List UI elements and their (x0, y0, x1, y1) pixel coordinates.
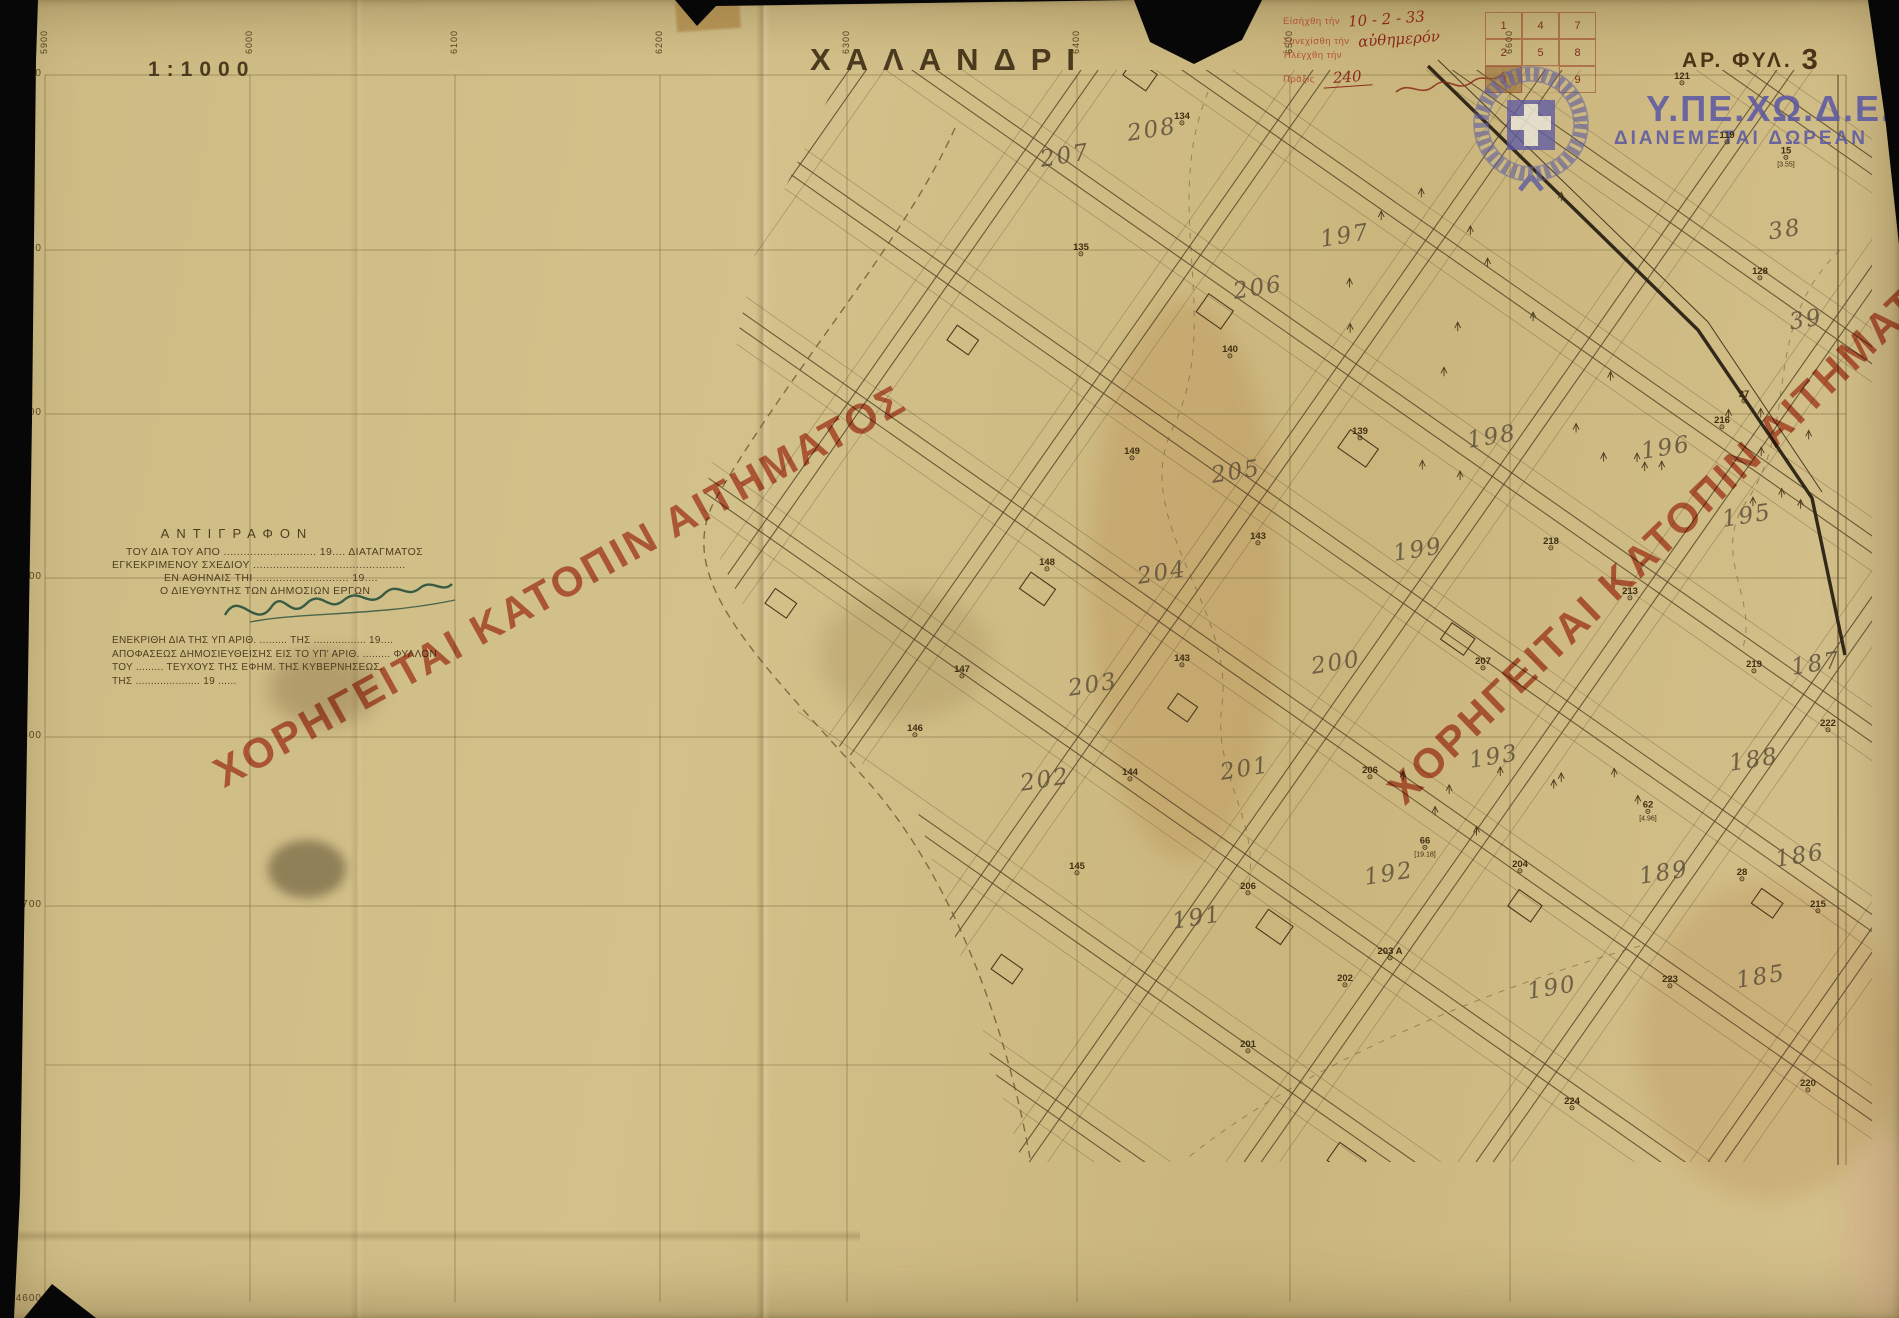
survey-point-label: 121⊙ (1674, 73, 1690, 87)
point-elevation: [3.55] (1777, 162, 1795, 169)
stamp-row: Συνεχίσθη τήναὐθημερόν (1283, 30, 1515, 48)
survey-point-label: 202⊙ (1337, 975, 1353, 989)
agency-distribution-note: ΔΙΑΝΕΜΕΤΑΙ ΔΩΡΕΑΝ (1614, 128, 1868, 150)
point-elevation: [19.18] (1414, 852, 1435, 859)
block-number-label: 39 (1788, 305, 1825, 336)
survey-point-label: 203 A⊙ (1378, 948, 1403, 962)
survey-point-label: 149⊙ (1124, 448, 1140, 462)
stamp-field-label: Πρᾶξις (1283, 74, 1315, 85)
survey-point-label: 62⊙[4.96] (1639, 802, 1657, 823)
survey-point-label: 135⊙ (1073, 244, 1089, 258)
certification-lines: ΤΟΥ ΔΙΑ ΤΟΥ ΑΠΟ ........................… (112, 546, 462, 598)
point-elevation: [4.96] (1639, 816, 1657, 823)
grid-x-label: 6000 (244, 30, 254, 54)
certification-line: ΕΓΚΕΚΡΙΜΕΝΟΥ ΣΧΕΔΙΟΥ ...................… (112, 559, 462, 572)
grid-x-label: 6400 (1071, 30, 1081, 54)
survey-point-label: 215⊙ (1810, 901, 1826, 915)
survey-point-label: 148⊙ (1039, 559, 1055, 573)
survey-point-label: 206⊙ (1240, 883, 1256, 897)
certification-line: Ο ΔΙΕΥΘΥΝΤΗΣ ΤΩΝ ΔΗΜΟΣΙΩΝ ΕΡΓΩΝ (112, 585, 462, 598)
grid-y-label: 4800 (4, 730, 42, 741)
survey-point-label: 15⊙[3.55] (1777, 148, 1795, 169)
survey-point-label: 219⊙ (1746, 661, 1762, 675)
decision-line: ΤΟΥ ......... ΤΕΥΧΟΥΣ ΤΗΣ ΕΦΗΜ. ΤΗΣ ΚΥΒΕ… (112, 661, 492, 675)
survey-point-label: 223⊙ (1662, 976, 1678, 990)
survey-point-label: 206⊙ (1362, 767, 1378, 781)
stamp-field-value: 240 (1322, 66, 1372, 88)
survey-point-label: 66⊙[19.18] (1414, 838, 1435, 859)
grid-x-label: 5900 (39, 30, 49, 54)
survey-point-label: 134⊙ (1174, 113, 1190, 127)
grid-x-label: 6500 (1284, 30, 1294, 54)
index-cell: 4 (1522, 12, 1559, 39)
survey-point-label: 119⊙ (1719, 132, 1734, 146)
grid-y-label: 5100 (4, 243, 42, 254)
survey-point-label: 143⊙ (1250, 533, 1266, 547)
grid-x-label: 6600 (1504, 30, 1514, 54)
survey-point-label: 128⊙ (1752, 268, 1768, 282)
stamp-field-label: Εἰσήχθη τήν (1283, 16, 1340, 27)
index-cell: 7 (1559, 12, 1596, 39)
certification-heading: ΑΝΤΙΓΡΑΦΟΝ (112, 526, 362, 541)
survey-point-label: 220⊙ (1800, 1080, 1816, 1094)
copy-certification-block: ΑΝΤΙΓΡΑΦΟΝ ΤΟΥ ΔΙΑ ΤΟΥ ΑΠΟ .............… (112, 526, 462, 598)
sheet-number-label: ΑΡ. ΦΥΛ. 3 (1682, 44, 1818, 77)
survey-point-label: 218⊙ (1543, 538, 1559, 552)
contour-lines (704, 92, 1840, 1160)
ypechode-emblem (1470, 60, 1592, 194)
sheet-label-text: ΑΡ. ΦΥΛ. (1682, 49, 1793, 72)
survey-point-label: 147⊙ (954, 666, 970, 680)
grid-x-label: 6100 (449, 30, 459, 54)
agency-name: Υ.ΠΕ.ΧΩ.Δ.Ε. (1646, 88, 1893, 130)
map-scale: 1:1000 (148, 58, 255, 82)
survey-point-label: 140⊙ (1222, 346, 1238, 360)
survey-point-label: 27⊙ (1739, 391, 1750, 405)
stamp-field-value: αὐθημερόν (1357, 27, 1440, 51)
stamp-row: Εἰσήχθη τήν10 - 2 - 33 (1283, 10, 1515, 28)
grid-y-label: 4600 (4, 1293, 42, 1304)
stamp-field-value: 10 - 2 - 33 (1348, 7, 1426, 30)
survey-point-label: 204⊙ (1512, 861, 1528, 875)
scanned-map-sheet: 1:1000 ΧΑΛΑΝΔΡΙ ΑΡ. ΦΥΛ. 3 83 Εἰσήχθη τή… (0, 0, 1899, 1318)
survey-point-label: 28⊙ (1737, 869, 1748, 883)
decision-line: ΑΠΟΦΑΣΕΩΣ ΔΗΜΟΣΙΕΥΘΕΙΣΗΣ ΕΙΣ ΤΟ ΥΠ' ΑΡΙΘ… (112, 648, 492, 662)
survey-point-label: 207⊙ (1475, 658, 1491, 672)
certification-line: ΤΟΥ ΔΙΑ ΤΟΥ ΑΠΟ ........................… (112, 546, 462, 559)
grid-y-label: 4900 (4, 571, 42, 582)
decision-line: ΤΗΣ ..................... 19 ...... (112, 675, 492, 689)
grid-x-label: 6200 (654, 30, 664, 54)
sheet-number: 3 (1802, 44, 1818, 76)
survey-point-label: 139⊙ (1352, 428, 1368, 442)
decision-line: ΕΝΕΚΡΙΘΗ ΔΙΑ ΤΗΣ ΥΠ ΑΡΙΘ. ......... ΤΗΣ … (112, 634, 492, 648)
grid-x-label: 6300 (841, 30, 851, 54)
survey-point-label: 143⊙ (1174, 655, 1190, 669)
survey-point-label: 146⊙ (907, 725, 923, 739)
grid-y-label: 5200 (4, 68, 42, 79)
survey-point-label: 145⊙ (1069, 863, 1085, 877)
survey-point-label: 144⊙ (1122, 769, 1138, 783)
map-title: ΧΑΛΑΝΔΡΙ (810, 42, 1090, 78)
survey-point-label: 213⊙ (1622, 588, 1638, 602)
survey-point-label: 216⊙ (1714, 417, 1730, 431)
survey-point-label: 201⊙ (1240, 1041, 1256, 1055)
survey-point-label: 222⊙ (1820, 720, 1836, 734)
grid-y-label: 5000 (4, 407, 42, 418)
approval-decision-block: ΕΝΕΚΡΙΘΗ ΔΙΑ ΤΗΣ ΥΠ ΑΡΙΘ. ......... ΤΗΣ … (112, 634, 492, 688)
survey-point-label: 224⊙ (1564, 1098, 1580, 1112)
grid-y-label: 4700 (4, 899, 42, 910)
block-number-label: 38 (1767, 215, 1804, 246)
certification-line: ΕΝ ΑΘΗΝΑΙΣ ΤΗΙ .........................… (112, 572, 462, 585)
paper-sheet: 1:1000 ΧΑΛΑΝΔΡΙ ΑΡ. ΦΥΛ. 3 83 Εἰσήχθη τή… (0, 0, 1899, 1318)
